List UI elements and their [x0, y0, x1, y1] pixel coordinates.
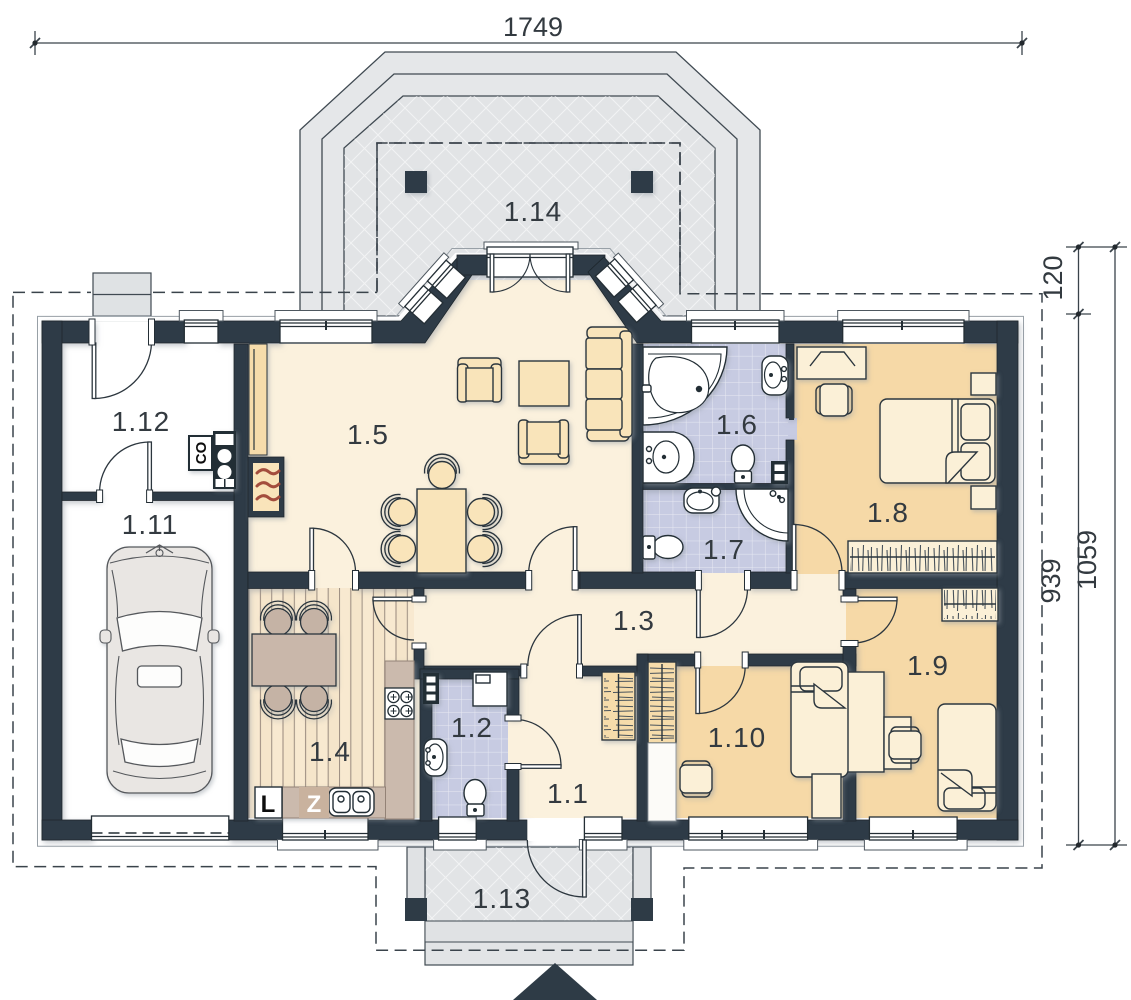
svg-text:1.10: 1.10: [708, 722, 767, 753]
svg-text:1.2: 1.2: [451, 712, 493, 743]
svg-text:1.7: 1.7: [703, 534, 745, 565]
svg-text:L: L: [261, 791, 276, 818]
svg-text:1.14: 1.14: [504, 196, 563, 227]
svg-text:1.5: 1.5: [347, 419, 389, 450]
svg-text:Z: Z: [307, 791, 322, 818]
svg-text:1.4: 1.4: [309, 736, 351, 767]
svg-text:1.11: 1.11: [122, 509, 178, 540]
svg-text:1749: 1749: [503, 12, 563, 42]
svg-text:1.1: 1.1: [547, 778, 589, 809]
svg-text:1.13: 1.13: [473, 883, 532, 914]
svg-text:1.3: 1.3: [613, 605, 655, 636]
svg-text:CO: CO: [193, 441, 210, 464]
svg-text:1.8: 1.8: [867, 497, 909, 528]
svg-text:1.6: 1.6: [716, 409, 758, 440]
svg-text:939: 939: [1036, 558, 1066, 603]
svg-text:120: 120: [1038, 255, 1068, 300]
svg-text:1.9: 1.9: [907, 650, 949, 681]
svg-text:1059: 1059: [1072, 530, 1102, 590]
svg-text:1.12: 1.12: [112, 406, 171, 437]
